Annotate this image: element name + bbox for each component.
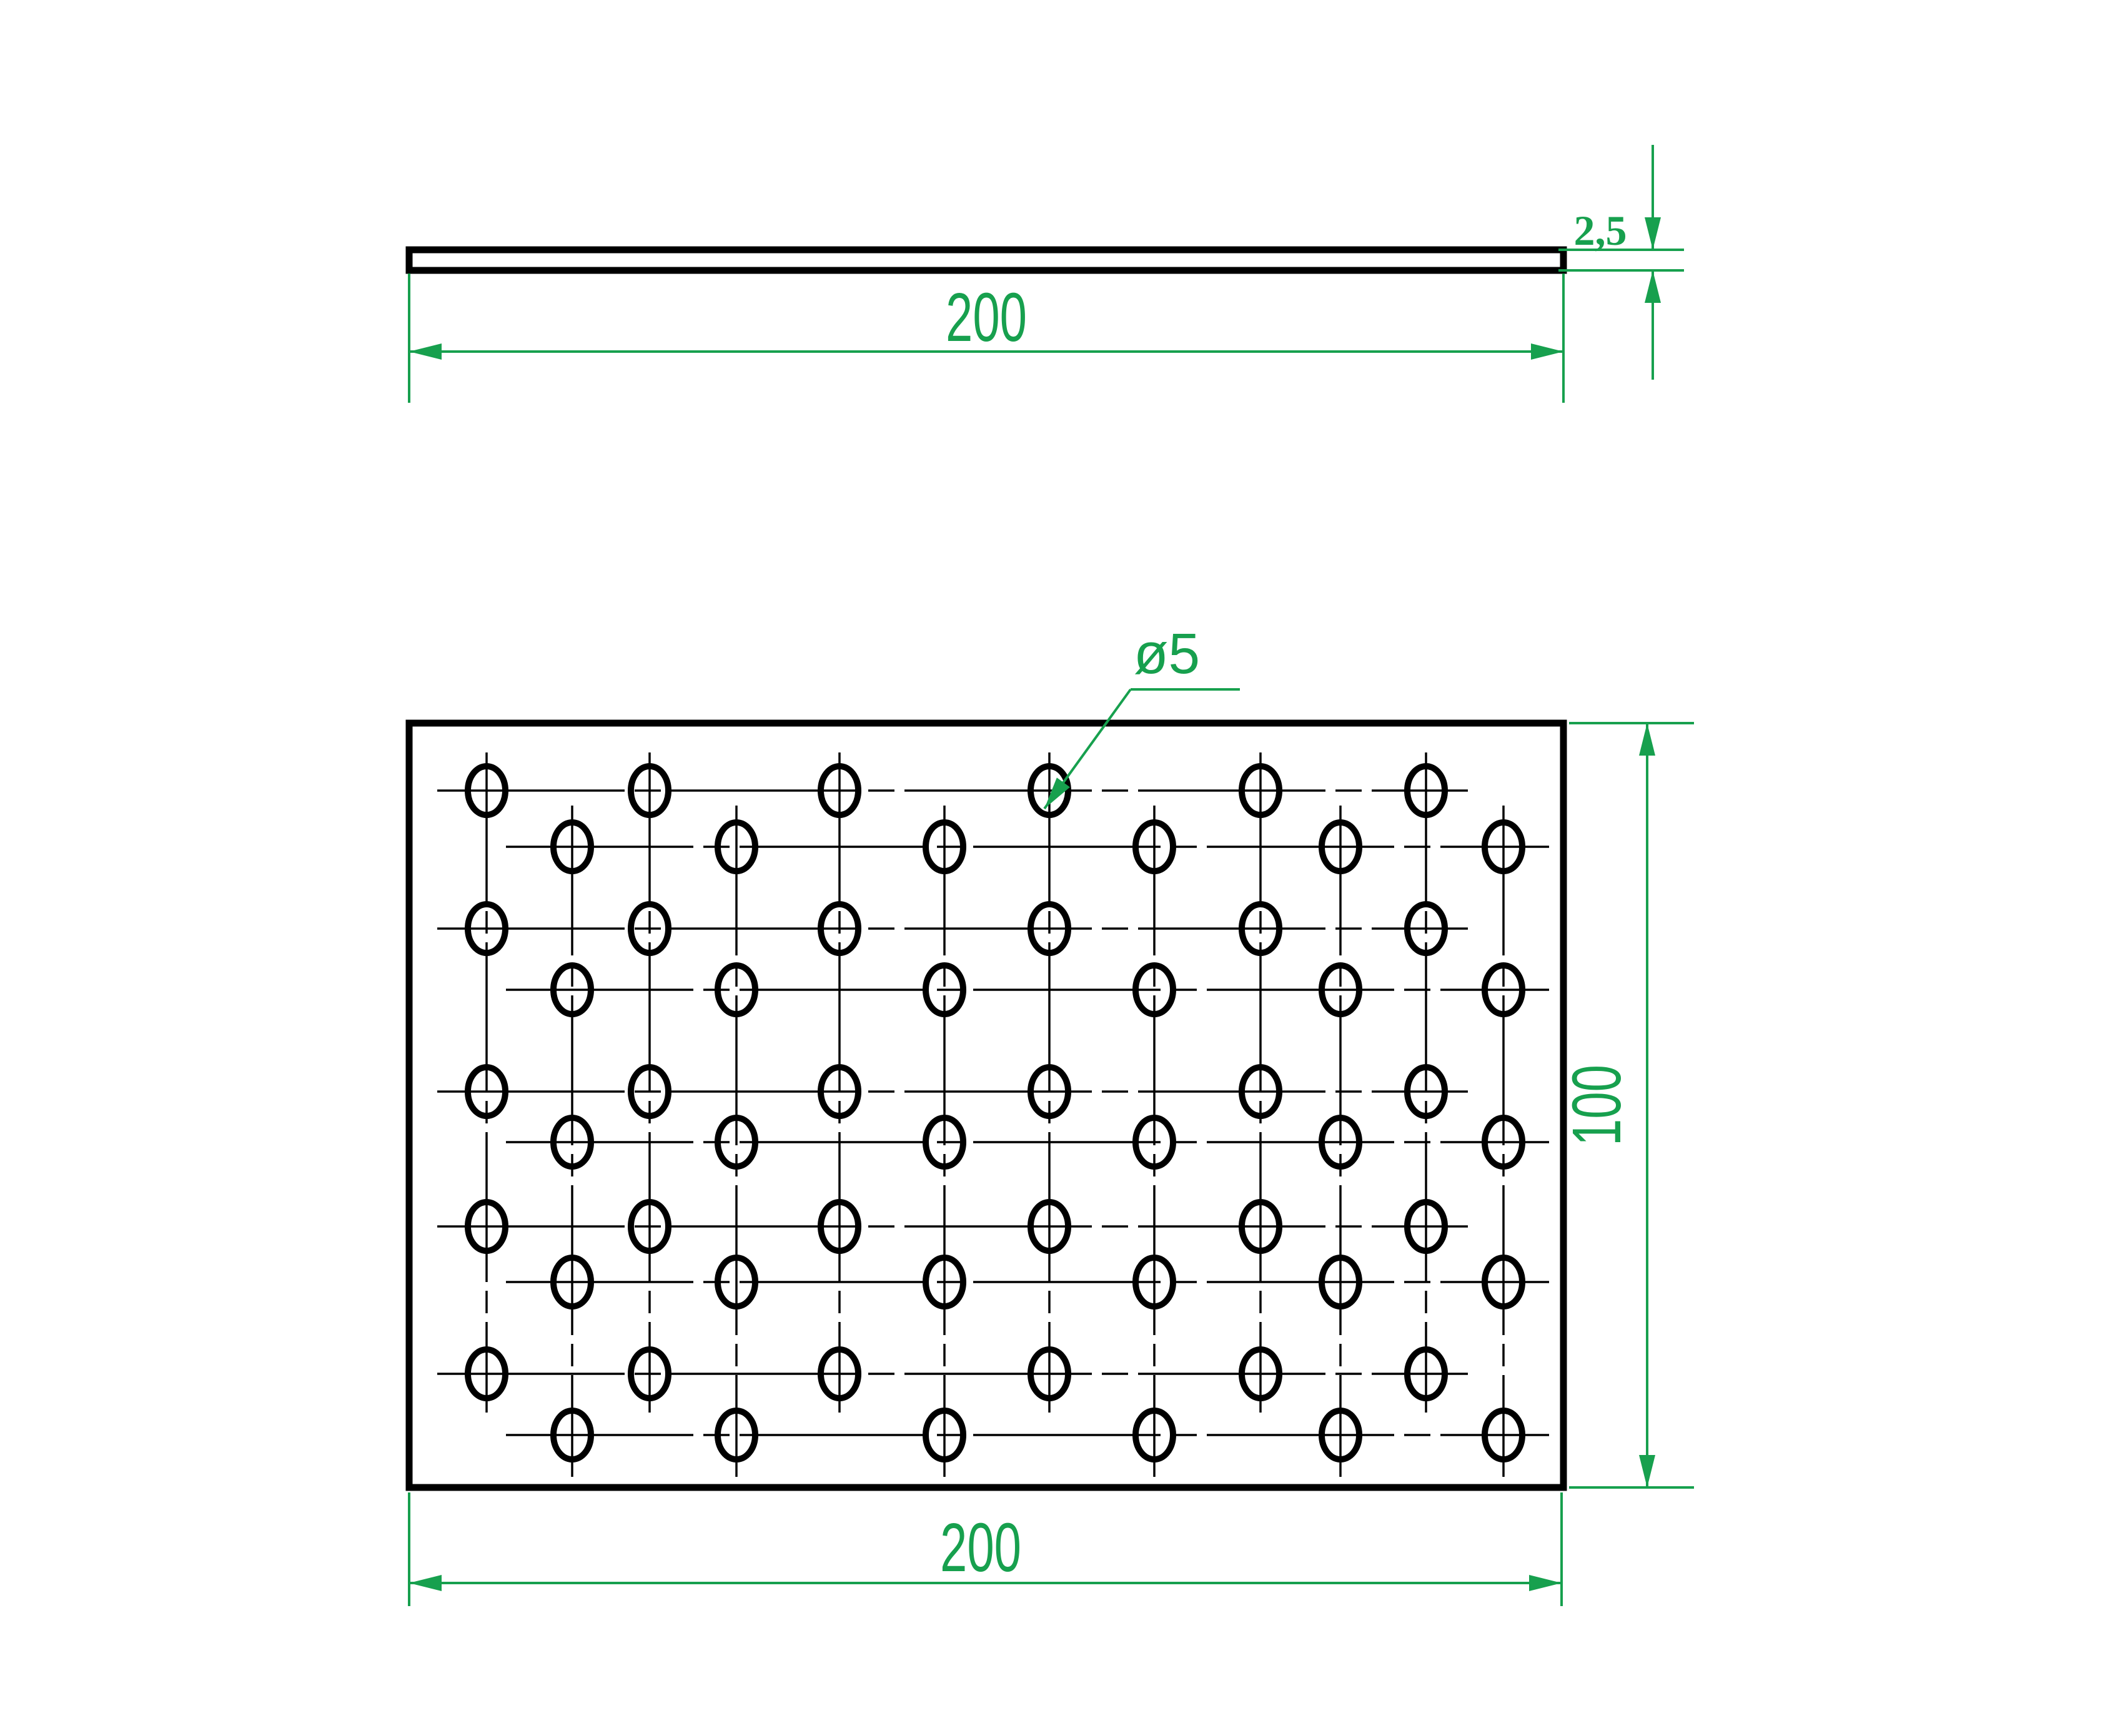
dimension-arrowhead [1531,343,1563,360]
dimension-arrowhead [1639,1455,1655,1487]
dimension-arrowhead [1645,217,1661,250]
side-length-label: 200 [946,279,1027,356]
side-view [409,250,1563,270]
side-plate-outline [409,250,1563,270]
technical-drawing-page: 2002,5200100ø5 [0,0,2105,1736]
face-view [409,723,1563,1487]
drawing-svg: 2002,5200100ø5 [0,0,2105,1736]
dimension-arrowhead [409,343,442,360]
face-height-label: 100 [1558,1065,1635,1146]
dimension-arrowhead [1645,270,1661,303]
thickness-label: 2,5 [1574,207,1627,254]
dimension-arrowhead [1529,1575,1562,1591]
dimension-arrowhead [409,1575,442,1591]
face-width-label: 200 [940,1509,1021,1586]
hole-diameter-label: ø5 [1134,622,1200,686]
dimension-arrowhead [1639,723,1655,756]
